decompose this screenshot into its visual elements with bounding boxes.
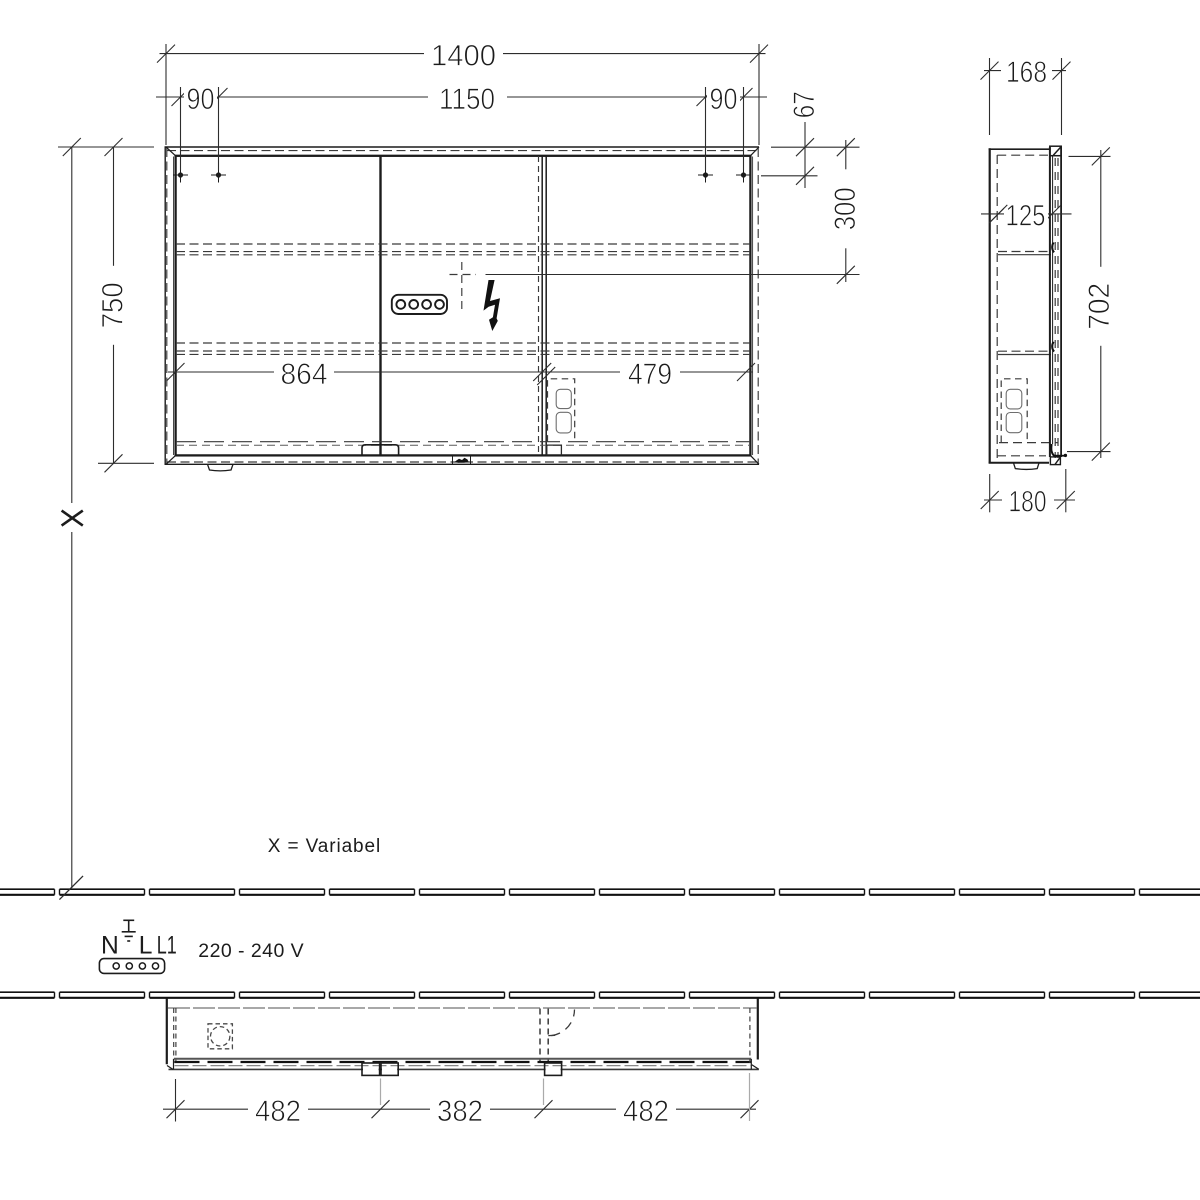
svg-text:90: 90 — [710, 83, 738, 116]
svg-text:X = Variabel: X = Variabel — [268, 836, 381, 857]
svg-text:864: 864 — [281, 358, 328, 391]
svg-text:90: 90 — [187, 83, 215, 116]
svg-text:180: 180 — [1009, 486, 1047, 519]
svg-text:482: 482 — [255, 1095, 301, 1128]
svg-text:220 - 240 V: 220 - 240 V — [198, 940, 304, 962]
svg-text:479: 479 — [628, 358, 672, 391]
svg-text:1150: 1150 — [439, 83, 495, 116]
svg-text:L: L — [139, 932, 153, 959]
svg-text:N: N — [101, 932, 119, 959]
svg-text:125: 125 — [1006, 200, 1046, 233]
svg-text:482: 482 — [623, 1095, 669, 1128]
svg-text:L1: L1 — [157, 932, 177, 959]
svg-text:382: 382 — [437, 1095, 483, 1128]
svg-text:300: 300 — [829, 187, 862, 230]
svg-text:168: 168 — [1006, 56, 1047, 89]
svg-text:750: 750 — [97, 282, 130, 328]
svg-text:67: 67 — [788, 91, 821, 118]
svg-text:702: 702 — [1083, 283, 1116, 330]
svg-text:1400: 1400 — [431, 40, 496, 73]
